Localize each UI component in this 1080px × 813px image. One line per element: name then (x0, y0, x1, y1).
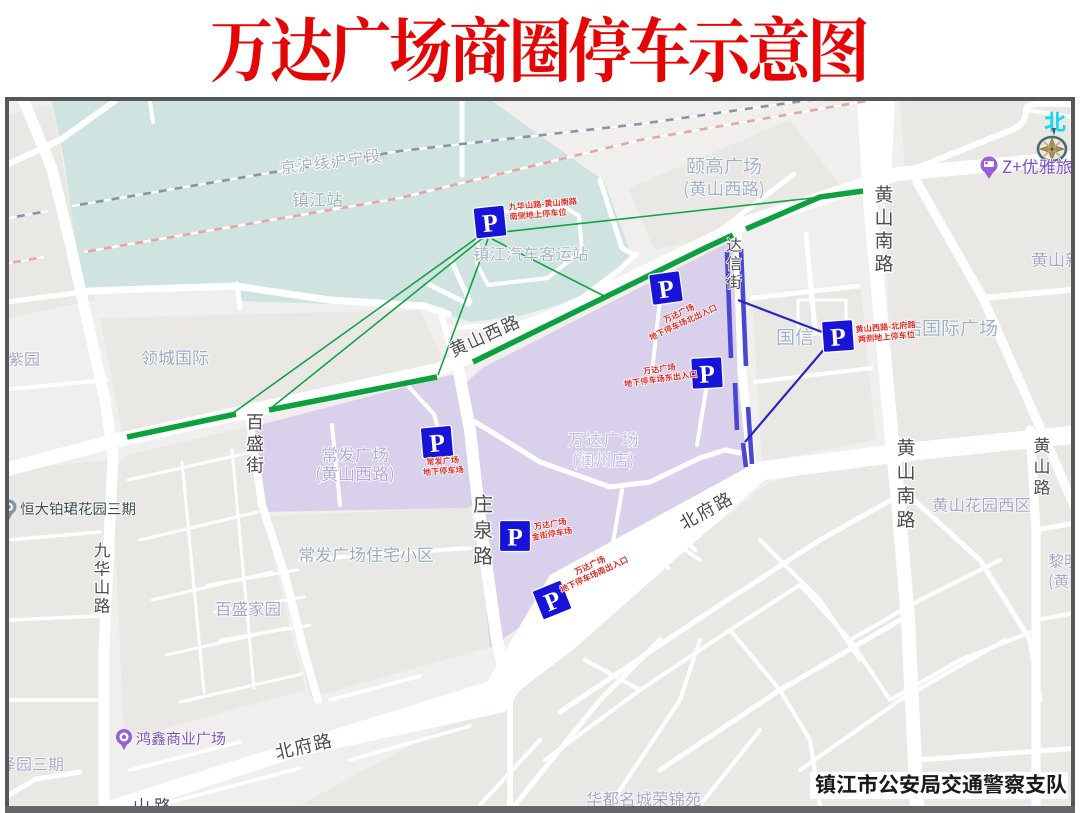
svg-text:P: P (829, 322, 847, 352)
svg-text:P: P (699, 359, 716, 389)
svg-text:P: P (507, 523, 523, 552)
svg-text:P: P (481, 208, 500, 238)
svg-text:P: P (428, 428, 446, 458)
